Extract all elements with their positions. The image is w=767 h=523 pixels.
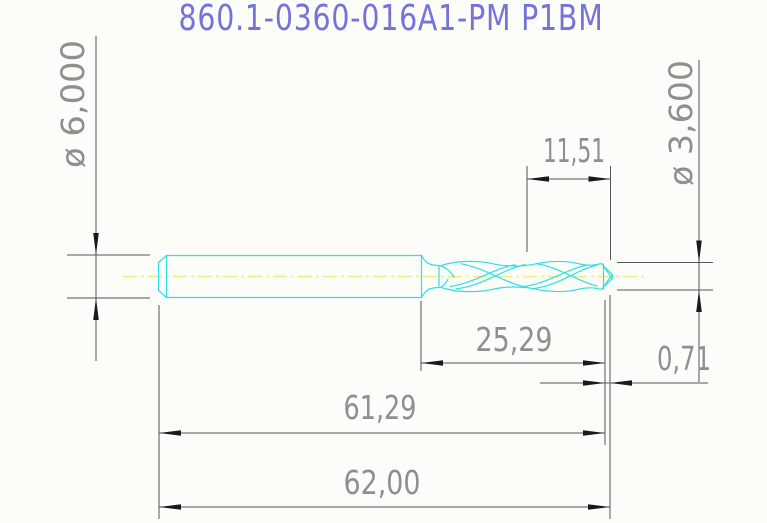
- arrow-left-icon: [527, 176, 549, 182]
- dimension-label-cutting-diameter: ø 3,600: [662, 60, 700, 186]
- flute-helix-line: [450, 265, 515, 287]
- arrow-down-icon: [93, 233, 99, 255]
- dimension-label-overall-length: 62,00: [344, 463, 421, 502]
- flute-helix-line: [537, 264, 597, 286]
- dimension-cutting-diameter: ø 3,600: [617, 60, 713, 382]
- arrow-right-icon: [588, 504, 610, 510]
- dimension-shank-diameter: ø 6,000: [54, 36, 150, 361]
- arrow-up-icon: [696, 290, 702, 312]
- flute-bottom-edge: [447, 287, 601, 292]
- arrow-right-icon: [583, 380, 605, 386]
- drawing-canvas: 860.1-0360-016A1-PM P1BM ø 6,000: [0, 0, 767, 523]
- drawing-title: 860.1-0360-016A1-PM P1BM: [179, 0, 604, 39]
- dimension-label-length-to-flute-end: 61,29: [344, 388, 417, 427]
- dimension-label-point-section: 11,51: [543, 131, 605, 170]
- flute-helix-line: [524, 265, 589, 287]
- arrow-left-icon: [421, 360, 443, 366]
- dimension-label-shank-diameter: ø 6,000: [54, 40, 92, 168]
- arrow-right-icon: [589, 176, 611, 182]
- arrow-left-icon: [610, 380, 632, 386]
- arrow-right-icon: [583, 430, 605, 436]
- arrow-left-icon: [159, 430, 181, 436]
- technical-drawing: 860.1-0360-016A1-PM P1BM ø 6,000: [0, 0, 767, 523]
- dimension-label-tip-length: 0,71: [657, 339, 711, 378]
- arrow-up-icon: [93, 298, 99, 320]
- dimension-point-section: 11,51: [527, 131, 611, 260]
- dimension-flute-shoulder: 25,29: [421, 301, 605, 371]
- arrow-left-icon: [159, 504, 181, 510]
- arrow-right-icon: [583, 360, 605, 366]
- dimension-tip-length: 0,71: [540, 339, 711, 386]
- arrow-down-icon: [696, 241, 702, 263]
- dimension-label-flute-shoulder: 25,29: [476, 320, 553, 359]
